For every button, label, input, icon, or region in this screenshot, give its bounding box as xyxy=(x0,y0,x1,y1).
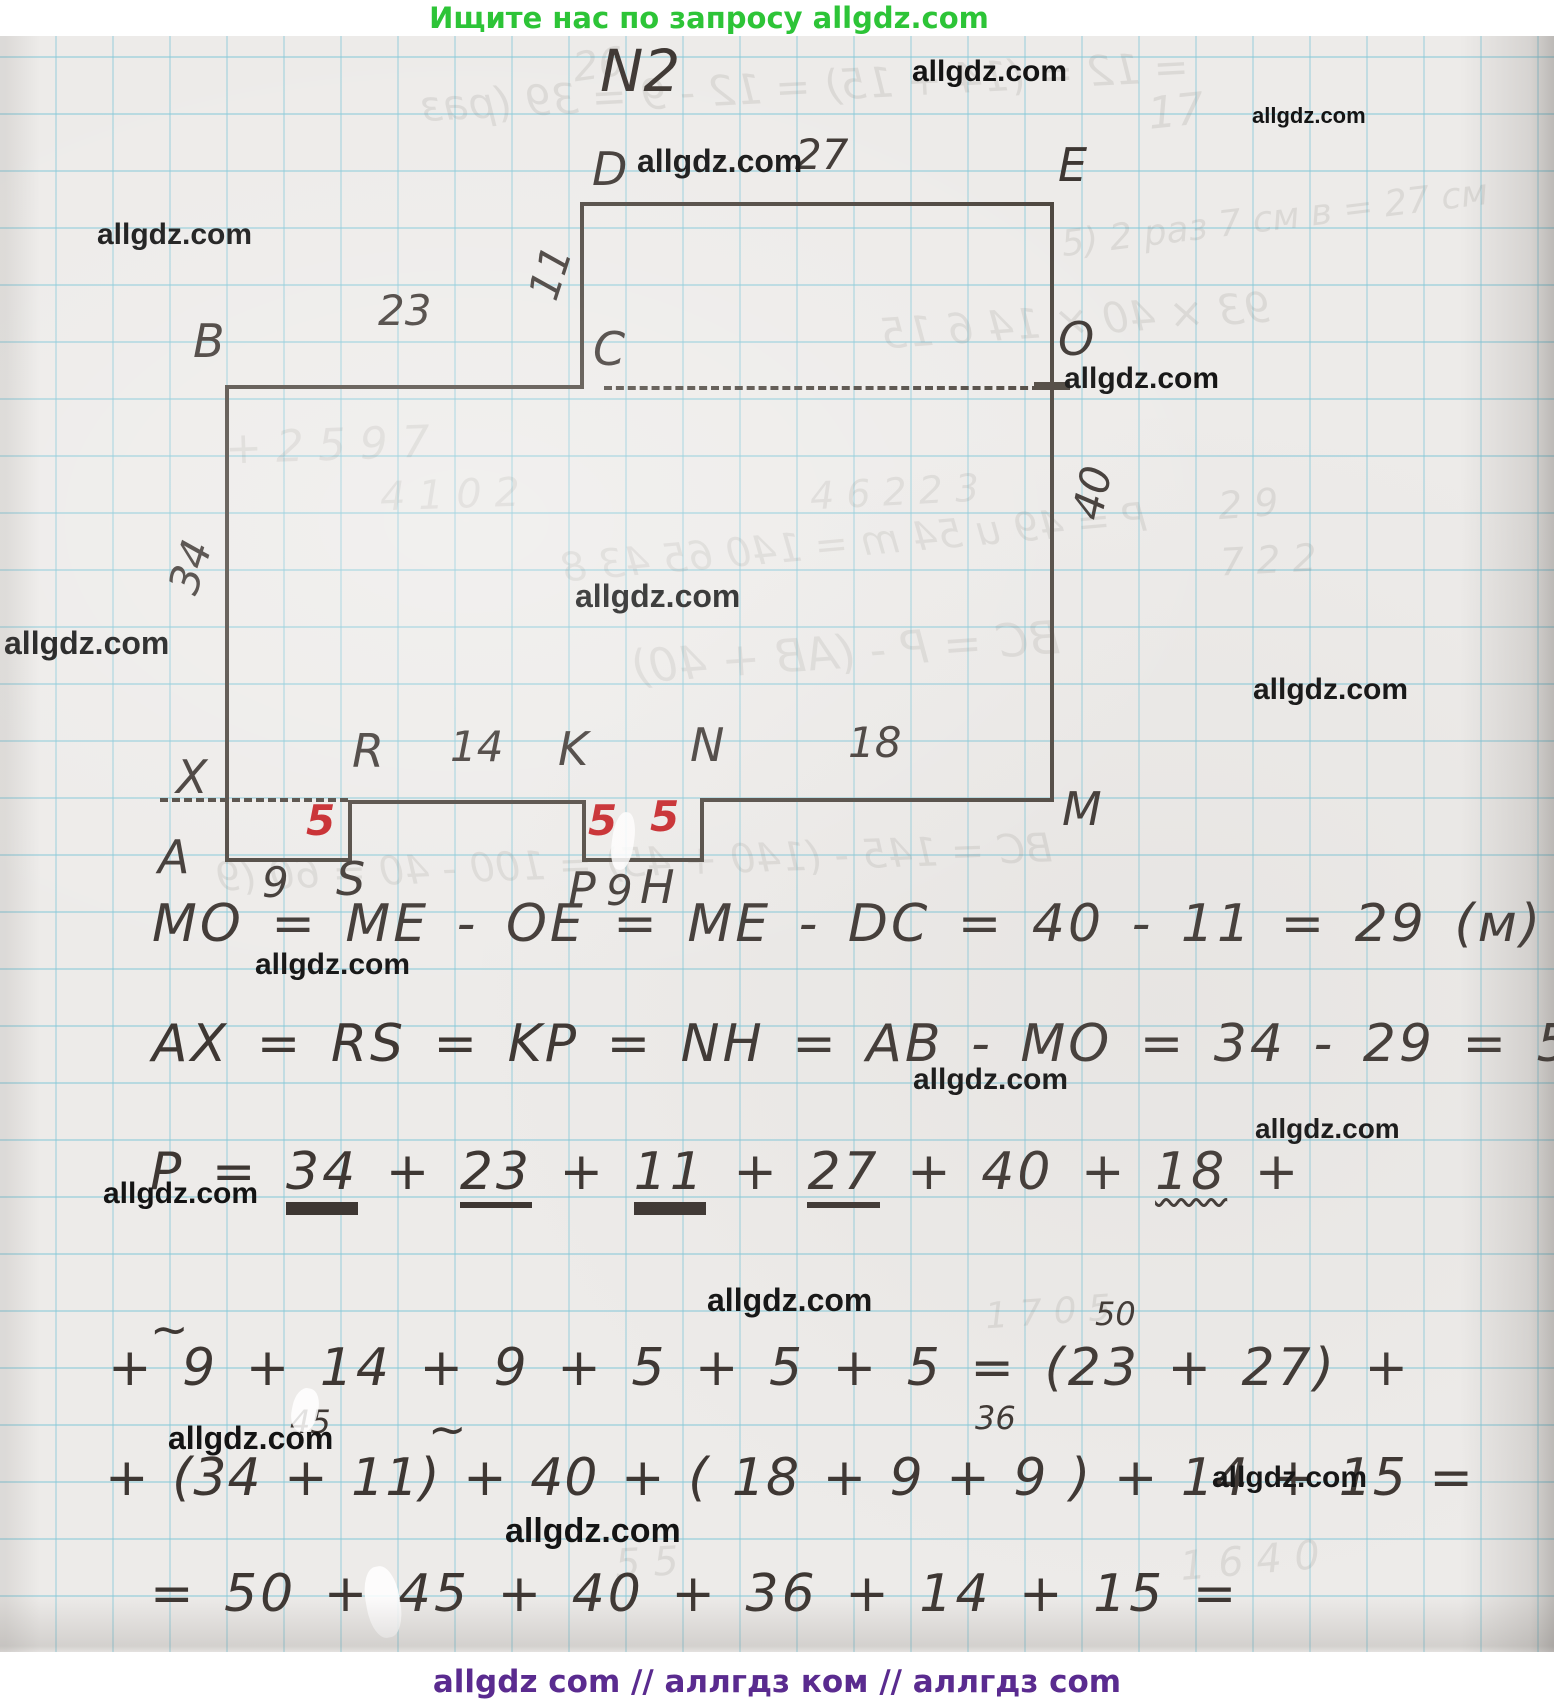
segment-KP xyxy=(582,800,586,862)
perimeter-term: 27 xyxy=(807,1142,879,1202)
segment-DC xyxy=(580,202,584,389)
watermark: allgdz.com xyxy=(912,55,1067,89)
banner-text: Ищите нас по запросу allgdz.com xyxy=(429,1,989,35)
vertex-label-R: R xyxy=(352,728,384,774)
pencil-scribble: 7 2 2 xyxy=(1219,535,1318,584)
carry-note-36: 36 xyxy=(975,1402,1016,1434)
segment-RK xyxy=(348,800,586,804)
segment-HN xyxy=(700,798,704,862)
segment-CO-dashed xyxy=(604,386,1040,390)
problem-number: N2 xyxy=(600,42,680,100)
watermark: allgdz.com xyxy=(103,1177,258,1211)
perimeter-term: 11 xyxy=(634,1142,706,1202)
segment-EM xyxy=(1050,202,1054,802)
vertex-label-D: D xyxy=(592,146,627,192)
vertex-label-O: O xyxy=(1058,316,1094,362)
equation-line-1: MO = ME - OE = ME - DC = 40 - 11 = 29 (м… xyxy=(152,898,1543,950)
equation-line-3: P = 34 + 23 + 11 + 27 + 40 + 18 + xyxy=(150,1146,1301,1198)
side-label-DE: 27 xyxy=(795,134,848,176)
vertex-label-A: A xyxy=(158,834,189,880)
watermark: allgdz.com xyxy=(575,578,740,615)
notebook-scan-page: 2617= 12 = (14 + 15) = 12 - 9 = 39 (раз5… xyxy=(0,0,1554,1707)
vertex-label-B: B xyxy=(193,318,225,364)
red-label-RS: 5 xyxy=(306,800,335,842)
watermark: allgdz.com xyxy=(505,1512,681,1551)
perimeter-term: 23 xyxy=(460,1142,532,1202)
bottom-band: allgdz com // аллгдз ком // аллгдз com xyxy=(0,1652,1554,1707)
red-label-NH: 5 xyxy=(650,796,679,838)
side-label-RK: 14 xyxy=(450,726,503,768)
pencil-scribble: 4 1 0 2 xyxy=(379,470,520,521)
equation-line-2: AX = RS = KP = NH = AB - MO = 34 - 29 = … xyxy=(152,1018,1554,1070)
segment-BC xyxy=(225,385,584,389)
watermark: allgdz.com xyxy=(168,1420,333,1457)
pencil-scribble: 2 9 xyxy=(1217,480,1280,528)
perimeter-term: 34 xyxy=(286,1142,358,1202)
tilde-mark-1: ~ xyxy=(150,1306,189,1352)
footer-text: allgdz com // аллгдз ком // аллгдз com xyxy=(433,1664,1121,1700)
segment-NM xyxy=(700,798,1054,802)
watermark: allgdz.com xyxy=(97,218,252,252)
side-label-BC: 23 xyxy=(378,290,431,332)
perimeter-term: 18 xyxy=(1155,1142,1227,1202)
watermark: allgdz.com xyxy=(255,948,410,982)
equation-line-6: = 50 + 45 + 40 + 36 + 14 + 15 = xyxy=(150,1568,1239,1620)
equation-line-4: + 9 + 14 + 9 + 5 + 5 + 5 = (23 + 27) + xyxy=(108,1342,1411,1394)
watermark: allgdz.com xyxy=(1212,1461,1367,1495)
watermark: allgdz.com xyxy=(1252,103,1366,129)
vertex-label-X: X xyxy=(176,754,208,800)
side-label-NM: 18 xyxy=(848,722,901,764)
watermark: allgdz.com xyxy=(707,1282,872,1319)
tilde-mark-2: ~ xyxy=(428,1406,467,1452)
vertex-label-M: M xyxy=(1062,786,1102,832)
segment-AB xyxy=(225,385,229,862)
vertex-label-E: E xyxy=(1058,142,1087,188)
side-label-EM: 40 xyxy=(1067,462,1119,523)
watermark: allgdz.com xyxy=(913,1063,1068,1097)
vertex-label-K: K xyxy=(558,726,588,772)
top-banner: Ищите нас по запросу allgdz.com xyxy=(0,0,1554,36)
segment-DE xyxy=(582,202,1054,206)
watermark: allgdz.com xyxy=(1253,673,1408,707)
vertex-label-C: C xyxy=(593,326,625,372)
perimeter-term: 40 xyxy=(981,1142,1053,1202)
watermark: allgdz.com xyxy=(637,143,802,180)
pencil-scribble: 1 7 0 5 xyxy=(984,1288,1113,1338)
pencil-scribble: + 2 5 9 7 xyxy=(224,416,430,474)
carry-note-50: 50 xyxy=(1095,1298,1136,1330)
watermark: allgdz.com xyxy=(4,625,169,662)
watermark: allgdz.com xyxy=(1255,1113,1400,1145)
watermark: allgdz.com xyxy=(1064,362,1219,396)
vertex-label-N: N xyxy=(690,722,724,768)
